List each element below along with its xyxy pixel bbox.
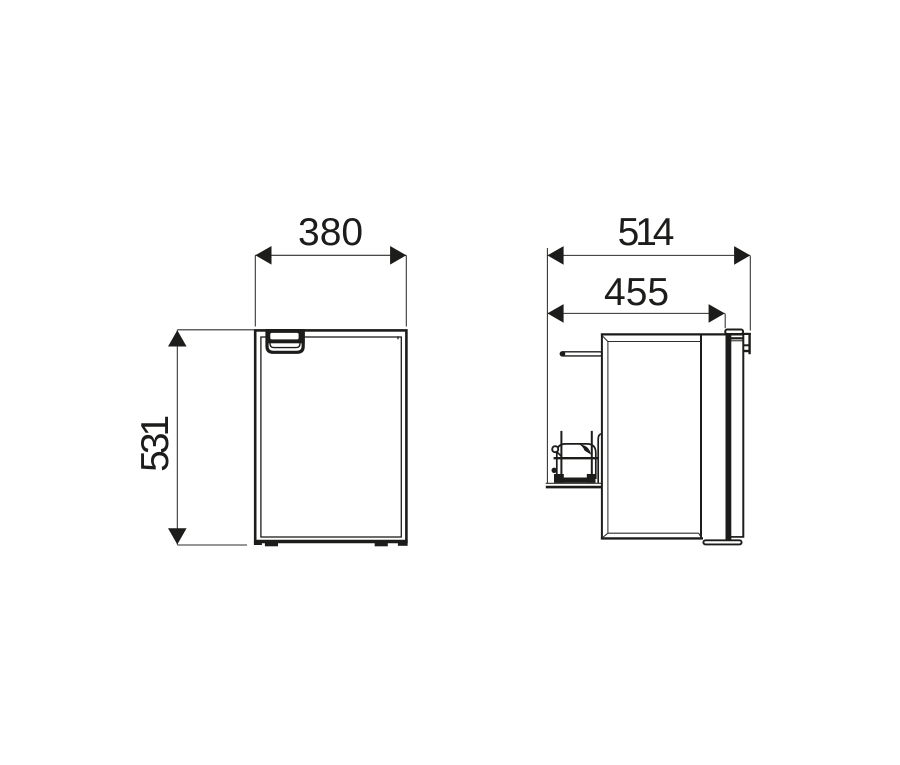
svg-text:455: 455 [604,271,669,314]
svg-text:514: 514 [618,211,674,254]
svg-text:380: 380 [298,211,363,254]
svg-text:531: 531 [134,416,177,471]
